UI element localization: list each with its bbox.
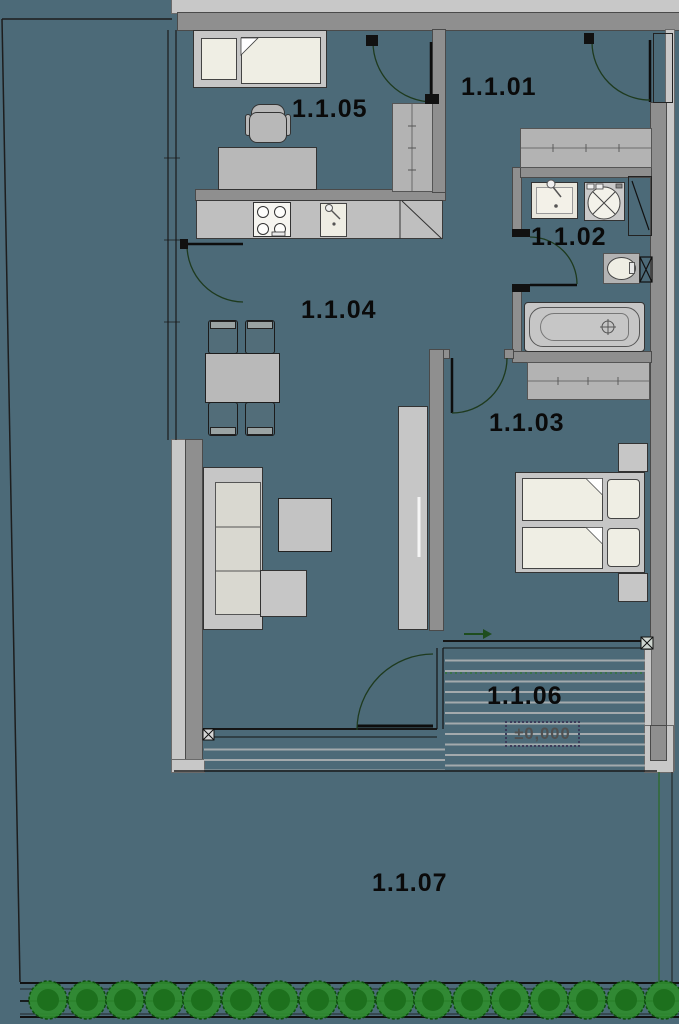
wall-bath-bottom <box>513 352 651 362</box>
entrance-door-arc <box>592 42 650 100</box>
mullion-post-left <box>203 729 214 740</box>
dining-chair-2 <box>245 320 275 354</box>
dining-chair-4 <box>245 402 275 436</box>
shaft-niche <box>628 176 652 236</box>
nightstand-bottom <box>618 573 648 602</box>
window-wall-left <box>168 30 176 440</box>
wall-left-inner <box>186 440 202 762</box>
office-chair-seat <box>249 112 287 143</box>
toilet-flush <box>629 262 635 274</box>
wall-right-inner <box>651 103 666 770</box>
tv-cabinet <box>398 406 428 630</box>
terrace-door-arc <box>357 654 433 730</box>
bedroom-door-arc <box>452 358 507 413</box>
wall-bath-left-upper <box>513 168 521 234</box>
property-line-left <box>2 19 20 982</box>
wall-room05-hall <box>433 30 445 192</box>
coffee-table <box>278 498 332 552</box>
door-kitchen-arc <box>187 245 243 302</box>
floor-plan: ±0,000 <box>0 0 679 1024</box>
room-label-1-1-03: 1.1.03 <box>489 409 565 438</box>
room-label-1-1-05: 1.1.05 <box>292 95 368 124</box>
dining-chair-1 <box>208 320 238 354</box>
terrace-decking-bottom <box>204 740 445 770</box>
washing-machine <box>584 182 625 221</box>
room-label-1-1-01: 1.1.01 <box>461 73 537 102</box>
wall-top-inner <box>178 13 679 30</box>
glass-wall-corner <box>437 648 443 729</box>
bed-pillow <box>201 38 237 80</box>
room-label-1-1-07: 1.1.07 <box>372 869 448 898</box>
hall-wardrobe <box>520 128 652 168</box>
mattress-2 <box>522 527 603 569</box>
kitchen-sink <box>320 203 347 237</box>
window-sill-ticks <box>164 158 180 322</box>
wall-top-outer <box>172 0 679 13</box>
dining-table <box>205 353 280 403</box>
mattress-1 <box>522 478 603 521</box>
bedroom-wardrobe <box>527 362 650 400</box>
dining-chair-3 <box>208 402 238 436</box>
hedge-band <box>20 982 679 1018</box>
room-label-1-1-04: 1.1.04 <box>301 296 377 325</box>
room-label-1-1-02: 1.1.02 <box>531 223 607 252</box>
nightstand-top <box>618 443 648 472</box>
wardrobe-room05 <box>392 103 433 192</box>
pillow-1 <box>607 479 640 519</box>
wall-left-foot <box>172 760 204 772</box>
bed-blanket <box>241 37 321 84</box>
door05-arc <box>373 42 433 102</box>
wall-bedroom-top-right <box>505 350 513 358</box>
elevation-marker: ±0,000 <box>505 721 580 747</box>
desk <box>218 147 317 190</box>
wall-bedroom-top-left <box>443 350 449 358</box>
wall-right-foot-inner <box>651 726 666 760</box>
wall-living-bedroom <box>430 350 443 630</box>
vanity-basin <box>536 187 573 214</box>
wall-right-outer <box>666 30 674 770</box>
sofa-cushions <box>215 482 261 615</box>
pillow-2 <box>607 528 640 567</box>
room-label-1-1-06: 1.1.06 <box>487 682 563 711</box>
entry-door-pier <box>653 33 673 103</box>
sofa-ottoman <box>260 570 307 617</box>
stove <box>253 202 291 237</box>
wall-terrace-right <box>645 650 651 726</box>
bathtub-basin <box>540 313 629 341</box>
